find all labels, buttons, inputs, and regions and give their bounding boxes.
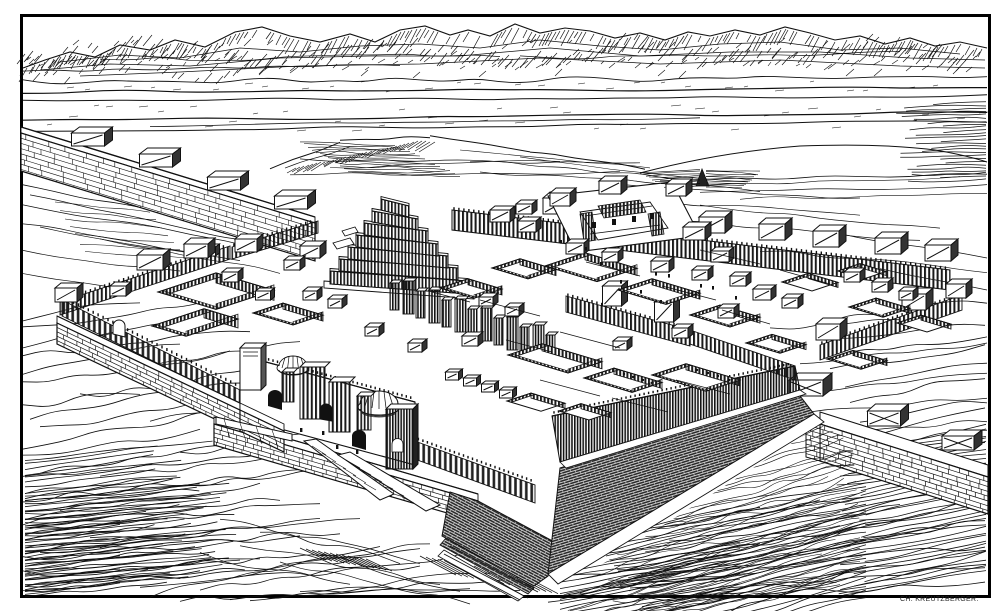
svg-text:CH. KREUTZBERGER.: CH. KREUTZBERGER. — [900, 596, 979, 603]
